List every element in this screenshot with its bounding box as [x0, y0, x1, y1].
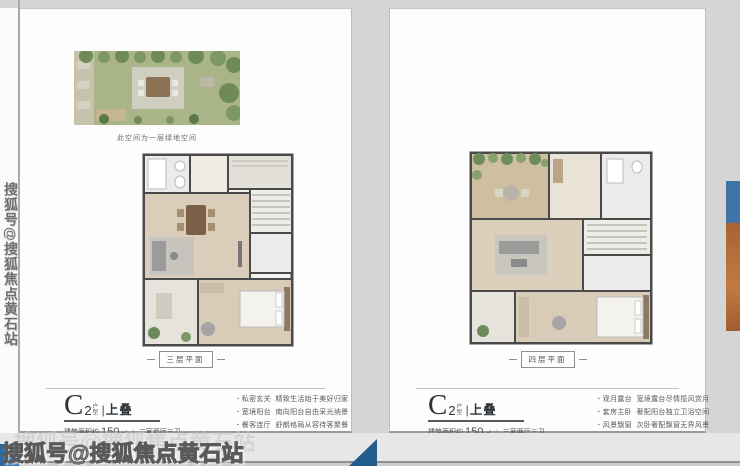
feature-item: ▪ 宽境阳台 南向阳台自由采光纳景 [237, 406, 348, 419]
floor-plan-level3-image [142, 153, 294, 347]
unit-letter: C [428, 393, 447, 417]
floor-tag-label: 三层平面 [159, 351, 213, 368]
floor-tag: 三层平面 [147, 351, 225, 368]
right-edge-blue-fragment [726, 181, 740, 223]
watermark-bottom: 搜狐号@搜狐焦点黄石站 [2, 436, 243, 466]
unit-separator: | [466, 404, 469, 417]
feature-item: ▪ 观月露台 宽境露台尽情揽风赏月 [598, 393, 709, 406]
bullet-icon: ▪ [237, 406, 239, 419]
right-edge-orange-fragment [726, 223, 740, 331]
unit-separator: | [102, 404, 105, 417]
floor-plan-level4-image [469, 151, 653, 345]
unit-type-small: 户型 [457, 405, 463, 416]
feature-text: 宽境阳台 南向阳台自由采光纳景 [242, 406, 349, 419]
floor-tag: 四层平面 [509, 351, 587, 368]
feature-text: 餐客连厅 舒朗格局从容待客聚餐 [242, 419, 349, 432]
bullet-icon: ▪ [598, 393, 600, 406]
feature-list: ▪ 观月露台 宽境露台尽情揽风赏月 ▪ 套房主卧 奢配阳台独立卫浴空间 ▪ 风景… [598, 393, 709, 432]
divider-line [416, 388, 679, 389]
right-brochure-page: 四层平面 C 2 户型 | 上叠 建筑面积约 150 ㎡ | 三室两厅三卫 ▪ [389, 8, 706, 433]
bullet-icon: ▪ [598, 419, 600, 432]
feature-text: 套房主卧 奢配阳台独立卫浴空间 [603, 406, 710, 419]
unit-type-small: 户型 [93, 405, 99, 416]
bullet-icon: ▪ [237, 393, 239, 406]
watermark-vertical: 搜狐号@搜狐焦点黄石站 [1, 182, 21, 347]
unit-number: 2 [84, 404, 91, 417]
feature-item: ▪ 套房主卧 奢配阳台独立卫浴空间 [598, 406, 709, 419]
unit-letter: C [64, 393, 83, 417]
unit-title: C 2 户型 | 上叠 [428, 393, 545, 417]
left-brochure-page: 此空间为一层绿地空间 [20, 8, 352, 433]
garden-caption: 此空间为一层绿地空间 [74, 133, 240, 143]
feature-text: 风景飘窗 次卧奢配飘窗无界风景 [603, 419, 710, 432]
garden-plan-image [74, 51, 240, 125]
feature-text: 观月露台 宽境露台尽情揽风赏月 [603, 393, 710, 406]
bullet-icon: ▪ [598, 406, 600, 419]
feature-item: ▪ 私密玄关 精致生活始于美好归家 [237, 393, 348, 406]
screenshot-canvas: 此空间为一层绿地空间 [0, 0, 740, 466]
feature-text: 私密玄关 精致生活始于美好归家 [242, 393, 349, 406]
floor-tag-label: 四层平面 [521, 351, 575, 368]
unit-suffix: 上叠 [106, 404, 133, 417]
unit-title-block: C 2 户型 | 上叠 建筑面积约 150 ㎡ | 三室两厅三卫 [428, 393, 545, 437]
divider-line [46, 388, 325, 389]
unit-suffix: 上叠 [470, 404, 497, 417]
feature-item: ▪ 风景飘窗 次卧奢配飘窗无界风景 [598, 419, 709, 432]
unit-title: C 2 户型 | 上叠 [64, 393, 181, 417]
unit-number: 2 [448, 404, 455, 417]
